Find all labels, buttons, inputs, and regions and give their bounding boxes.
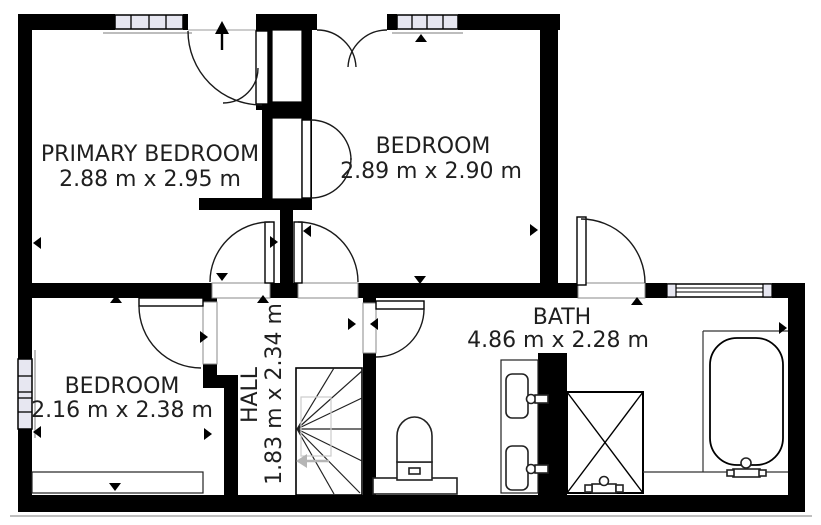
entry-arrow-icon <box>215 21 229 50</box>
measure-marker <box>216 273 228 281</box>
room-label-bedroom-bottom: BEDROOM <box>65 374 180 399</box>
faucet <box>527 465 549 474</box>
room-dimensions-bath: 4.86 m x 2.28 m <box>467 328 649 353</box>
window-bedroom-top <box>390 14 463 33</box>
closet-door-leaf <box>302 120 311 198</box>
floor-plan: PRIMARY BEDROOM 2.88 m x 2.95 m BEDROOM … <box>0 0 821 525</box>
tub-basin <box>710 338 783 465</box>
faucet <box>527 395 549 404</box>
room-dimensions-bedroom-bottom: 2.16 m x 2.38 m <box>31 398 213 423</box>
measure-marker <box>204 428 212 440</box>
closet <box>262 110 351 210</box>
toilet <box>373 417 457 494</box>
toilet-bowl <box>397 417 432 462</box>
entry-door <box>188 21 268 105</box>
wardrobe <box>32 472 203 493</box>
room-label-bath: BATH <box>533 305 591 330</box>
door-leaf <box>294 222 302 283</box>
measure-marker <box>415 34 427 42</box>
entry-door-leaf <box>256 31 268 104</box>
door-leaf <box>376 301 424 309</box>
room-dimensions-primary-bedroom: 2.88 m x 2.95 m <box>59 167 241 192</box>
door-bedroom-top <box>294 222 358 298</box>
shower <box>567 392 643 493</box>
sink-basin <box>506 374 528 418</box>
window-bedroom-bottom <box>18 350 35 438</box>
bathtub <box>643 331 788 477</box>
door-arc <box>581 219 645 283</box>
room-label-hall: HALL <box>238 366 263 423</box>
measure-marker <box>109 483 121 491</box>
sink-basin <box>506 446 528 490</box>
room-label-primary-bedroom: PRIMARY BEDROOM <box>41 142 259 167</box>
door-bedroom-bottom <box>139 298 217 368</box>
winder-stairs <box>296 368 362 495</box>
closet-door-arc <box>311 120 351 160</box>
wardrobe-doors-bedroom-top <box>317 30 387 67</box>
door-leaf <box>577 217 586 285</box>
measure-marker <box>348 318 356 330</box>
ground-line <box>10 515 812 517</box>
door-arc <box>139 306 201 368</box>
room-dimensions-bedroom-top: 2.89 m x 2.90 m <box>340 159 522 184</box>
window-primary-bedroom <box>103 14 192 33</box>
measure-marker <box>303 225 311 237</box>
door-primary-bedroom <box>210 222 274 298</box>
door-leaf <box>265 222 274 283</box>
measure-marker <box>530 224 538 236</box>
measure-marker <box>414 276 426 284</box>
door-bath-exterior <box>577 217 645 298</box>
measure-marker <box>33 237 41 249</box>
door-arc <box>376 309 424 357</box>
room-label-bedroom-top: BEDROOM <box>376 134 491 159</box>
window-bath <box>667 284 772 297</box>
entry-door-arc <box>188 31 262 105</box>
room-dimensions-hall: 1.83 m x 2.34 m <box>262 303 287 485</box>
measure-marker <box>779 322 787 334</box>
toilet-flush-button <box>409 468 420 474</box>
door-bath <box>363 301 424 357</box>
door-leaf <box>139 298 203 306</box>
